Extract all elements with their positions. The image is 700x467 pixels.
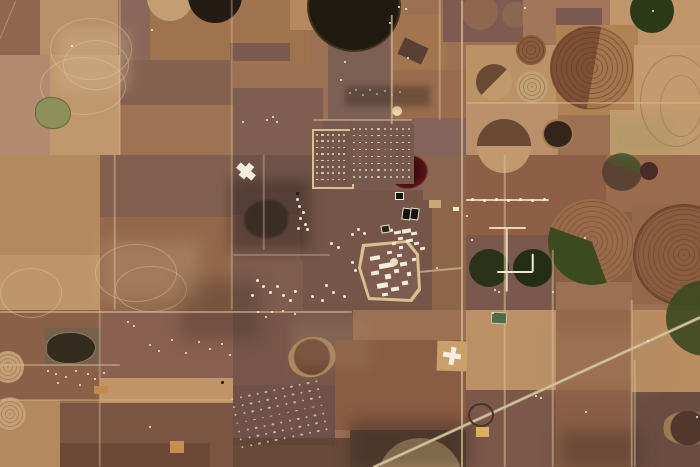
- grid-dot: [248, 394, 251, 396]
- grid-dot: [343, 147, 345, 149]
- terrain-mottle: [560, 430, 640, 467]
- section-road: [114, 155, 116, 310]
- grid-dot: [319, 396, 322, 398]
- plant-outbuildings: [269, 291, 272, 294]
- grid-dot: [371, 128, 373, 130]
- grid-dot: [322, 412, 325, 414]
- grid-dot: [390, 169, 392, 171]
- grid-dot: [307, 382, 310, 384]
- grid-dot: [396, 176, 398, 178]
- grid-dot: [300, 434, 303, 436]
- field-patch: [230, 43, 290, 61]
- grid-dot: [408, 163, 410, 165]
- section-road: [119, 0, 121, 155]
- grid-dot: [258, 443, 261, 445]
- grid-dot: [359, 163, 361, 165]
- grid-dot: [277, 405, 280, 407]
- grid-dot: [377, 176, 379, 178]
- pivot-wheel-dots: [531, 199, 534, 202]
- pivot-wheel-dots: [495, 198, 498, 201]
- grid-dot: [359, 149, 361, 151]
- grid-dot: [295, 410, 298, 412]
- plant-towers: [304, 223, 307, 226]
- grid-dot: [384, 176, 386, 178]
- grid-dot: [353, 169, 355, 171]
- scrub-speckles: [384, 90, 386, 92]
- pivot-wheel-dots: [519, 198, 522, 201]
- grid-dot: [321, 166, 323, 168]
- scrub-speckles: [355, 89, 357, 91]
- grid-dot: [251, 410, 254, 412]
- grid-dot: [267, 441, 270, 443]
- grid-dot: [316, 153, 318, 155]
- grid-dot: [298, 384, 301, 386]
- grid-dot: [260, 409, 263, 411]
- grid-dot: [343, 166, 345, 168]
- grid-dot: [307, 424, 310, 426]
- bunker-igloo-grid: [316, 134, 348, 185]
- terrain-mottle: [230, 180, 310, 250]
- grid-dot: [250, 402, 253, 404]
- grid-dot: [377, 169, 379, 171]
- field-patch: [120, 105, 233, 155]
- grid-dot: [327, 166, 329, 168]
- grid-dot: [377, 135, 379, 137]
- dark-ring-track: [468, 403, 494, 427]
- dark-dots: [296, 192, 299, 195]
- grid-dot: [305, 416, 308, 418]
- grid-dot: [302, 400, 305, 402]
- grid-dot: [384, 128, 386, 130]
- plant-outbuildings: [256, 279, 259, 282]
- grid-dot: [308, 390, 311, 392]
- grid-dot: [396, 156, 398, 158]
- grid-dot: [390, 176, 392, 178]
- pivot-arm-line: [506, 228, 508, 292]
- bunker-igloo-grid: [353, 128, 414, 183]
- grid-dot: [283, 395, 286, 397]
- satellite-image: [0, 0, 700, 467]
- grid-dot: [293, 401, 296, 403]
- grid-dot: [261, 417, 264, 419]
- grid-dot: [234, 414, 237, 416]
- grid-dot: [241, 404, 244, 406]
- grid-dot: [384, 149, 386, 151]
- grid-dot: [332, 153, 334, 155]
- grid-dot: [316, 147, 318, 149]
- grid-dot: [338, 179, 340, 181]
- grid-dot: [396, 128, 398, 130]
- field-patch: [423, 155, 466, 200]
- scrub-speckles: [362, 94, 364, 96]
- plant-outbuildings: [262, 285, 265, 288]
- grid-dot: [298, 426, 301, 428]
- grid-dot: [285, 403, 288, 405]
- grid-dot: [365, 169, 367, 171]
- grid-dot: [321, 153, 323, 155]
- grid-dot: [353, 156, 355, 158]
- grid-dot: [365, 142, 367, 144]
- grid-dot: [248, 436, 251, 438]
- grid-dot: [258, 401, 261, 403]
- grid-dot: [278, 413, 281, 415]
- grid-dot: [343, 140, 345, 142]
- plant-towers: [297, 227, 300, 230]
- grid-dot: [390, 163, 392, 165]
- grid-dot: [384, 156, 386, 158]
- plant-outbuildings: [251, 294, 254, 297]
- grid-dot: [327, 172, 329, 174]
- grid-dot: [280, 421, 283, 423]
- grid-dot: [338, 140, 340, 142]
- tan-pad: [429, 200, 441, 208]
- plant-building: [453, 207, 459, 211]
- grid-dot: [321, 140, 323, 142]
- grid-dot: [338, 134, 340, 136]
- grid-dot: [396, 135, 398, 137]
- grid-dot: [338, 160, 340, 162]
- section-road: [233, 254, 330, 256]
- green-sector-overlay: [548, 199, 636, 285]
- grid-dot: [327, 134, 329, 136]
- grid-dot: [290, 385, 293, 387]
- grid-dot: [390, 128, 392, 130]
- grid-dot: [402, 135, 404, 137]
- green-pivot-circle: [469, 249, 509, 287]
- grid-dot: [316, 134, 318, 136]
- grid-dot: [275, 439, 278, 441]
- grid-dot: [241, 446, 244, 448]
- grid-dot: [266, 399, 269, 401]
- grid-dot: [343, 160, 345, 162]
- grid-dot: [408, 156, 410, 158]
- orange-building: [170, 441, 184, 453]
- pivot-wheel-dots: [507, 199, 510, 202]
- grid-dot: [332, 166, 334, 168]
- grid-dot: [371, 163, 373, 165]
- plant-outbuildings: [282, 294, 285, 297]
- grid-dot: [353, 149, 355, 151]
- grid-dot: [371, 156, 373, 158]
- grid-dot: [282, 429, 285, 431]
- grid-dot: [315, 380, 318, 382]
- plant-outbuildings: [321, 299, 324, 302]
- grid-dot: [243, 412, 246, 414]
- grid-dot: [238, 430, 241, 432]
- grid-dot: [275, 397, 278, 399]
- grid-dot: [408, 135, 410, 137]
- section-road: [391, 15, 393, 125]
- grid-dot: [353, 142, 355, 144]
- dark-olive-circle: [602, 153, 642, 191]
- grid-dot: [402, 128, 404, 130]
- grid-dot: [396, 163, 398, 165]
- grid-dot: [384, 135, 386, 137]
- grid-dot: [377, 156, 379, 158]
- solar-panel: [409, 207, 420, 220]
- section-road: [0, 399, 233, 401]
- grid-dot: [321, 160, 323, 162]
- grid-dot: [325, 428, 328, 430]
- grid-dot: [332, 172, 334, 174]
- plant-outbuildings: [311, 295, 314, 298]
- grid-dot: [332, 140, 334, 142]
- ringed-pivot-circle: [516, 35, 546, 65]
- section-road: [313, 119, 412, 121]
- field-patch: [100, 155, 233, 217]
- grid-dot: [402, 169, 404, 171]
- tan-yellow-pad: [476, 427, 489, 437]
- grid-dot: [315, 422, 318, 424]
- grid-dot: [384, 169, 386, 171]
- grid-dot: [321, 179, 323, 181]
- scrub-speckles: [349, 92, 351, 94]
- grid-dot: [343, 179, 345, 181]
- grid-dot: [316, 179, 318, 181]
- plant-towers: [296, 198, 299, 201]
- section-road: [0, 311, 352, 313]
- grid-dot: [236, 422, 239, 424]
- terrain-mottle: [290, 318, 370, 368]
- grid-dot: [268, 407, 271, 409]
- section-road: [634, 360, 636, 467]
- grid-dot: [250, 444, 253, 446]
- grid-dot: [287, 411, 290, 413]
- grid-dot: [408, 128, 410, 130]
- grid-dot: [253, 418, 256, 420]
- scrub-speckles: [369, 89, 371, 91]
- grid-dot: [384, 163, 386, 165]
- grid-dot: [273, 431, 276, 433]
- plant-outbuildings: [294, 290, 297, 293]
- grid-dot: [377, 128, 379, 130]
- grid-dot: [297, 418, 300, 420]
- grid-dot: [371, 176, 373, 178]
- green-field-blob: [35, 97, 71, 129]
- grid-dot: [300, 392, 303, 394]
- section-road: [231, 0, 233, 310]
- dark-building: [380, 224, 390, 233]
- grid-dot: [320, 404, 323, 406]
- grid-dot: [317, 388, 320, 390]
- grid-dot: [292, 435, 295, 437]
- grid-dot: [377, 142, 379, 144]
- grid-dot: [359, 169, 361, 171]
- plant-outbuildings: [357, 228, 360, 231]
- section-road: [0, 364, 120, 366]
- plant-outbuildings: [354, 269, 357, 272]
- grid-dot: [332, 179, 334, 181]
- grid-dot: [408, 142, 410, 144]
- cream-tank: [392, 106, 402, 116]
- plant-building: [394, 269, 400, 274]
- grid-dot: [312, 406, 315, 408]
- grid-dot: [390, 135, 392, 137]
- grid-dot: [327, 160, 329, 162]
- grid-dot: [390, 142, 392, 144]
- grid-dot: [353, 128, 355, 130]
- plant-building: [407, 272, 412, 277]
- grid-dot: [303, 408, 306, 410]
- grid-dot: [233, 406, 236, 408]
- grid-dot: [240, 438, 243, 440]
- ringed-pivot-circle: [550, 26, 634, 110]
- grid-dot: [327, 179, 329, 181]
- grid-dot: [365, 176, 367, 178]
- grid-dot: [283, 437, 286, 439]
- grid-dot: [316, 160, 318, 162]
- grid-dot: [396, 142, 398, 144]
- grid-dot: [359, 142, 361, 144]
- field-patch: [120, 60, 233, 105]
- grid-dot: [270, 415, 273, 417]
- plant-outbuildings: [332, 291, 335, 294]
- plant-towers: [306, 228, 309, 231]
- grid-dot: [239, 396, 242, 398]
- small-maroon-circle: [640, 162, 658, 180]
- grid-dot: [272, 423, 275, 425]
- grid-dot: [332, 134, 334, 136]
- grid-dot: [282, 387, 285, 389]
- grid-dot: [365, 163, 367, 165]
- section-road: [466, 102, 700, 104]
- grid-dot: [310, 398, 313, 400]
- grid-dot: [332, 160, 334, 162]
- scrub-speckles: [376, 93, 378, 95]
- orange-building: [94, 386, 108, 394]
- plant-outbuildings: [289, 299, 292, 302]
- grid-dot: [321, 147, 323, 149]
- grid-dot: [338, 147, 340, 149]
- grid-dot: [338, 166, 340, 168]
- plant-outbuildings: [363, 232, 366, 235]
- grid-dot: [384, 142, 386, 144]
- plant-outbuildings: [343, 295, 346, 298]
- grid-dot: [365, 156, 367, 158]
- field-patch: [60, 443, 210, 467]
- ringed-pivot-circle: [516, 71, 548, 103]
- grid-dot: [288, 419, 291, 421]
- grid-dot: [343, 172, 345, 174]
- grid-dot: [359, 135, 361, 137]
- pivot-wheel-dots: [471, 198, 474, 201]
- grid-dot: [256, 434, 259, 436]
- grid-dot: [365, 149, 367, 151]
- plant-outbuildings: [325, 284, 328, 287]
- plant-outbuildings: [276, 285, 279, 288]
- cream-pond: [390, 258, 398, 266]
- grid-dot: [365, 128, 367, 130]
- grid-dot: [402, 163, 404, 165]
- farm-buildings: [405, 8, 408, 11]
- grid-dot: [321, 172, 323, 174]
- grid-dot: [353, 135, 355, 137]
- plant-outbuildings: [351, 261, 354, 264]
- grid-dot: [324, 420, 327, 422]
- dark-dots: [221, 381, 224, 384]
- grid-dot: [377, 163, 379, 165]
- scrub-speckles: [391, 94, 393, 96]
- terrain-mottle: [612, 120, 672, 155]
- grid-dot: [377, 149, 379, 151]
- grid-dot: [343, 153, 345, 155]
- grid-dot: [359, 128, 361, 130]
- grid-dot: [396, 169, 398, 171]
- grid-dot: [246, 428, 249, 430]
- grid-dot: [402, 176, 404, 178]
- grid-dot: [353, 176, 355, 178]
- plant-outbuildings: [351, 233, 354, 236]
- field-patch: [0, 155, 100, 255]
- grid-dot: [402, 149, 404, 151]
- grid-dot: [245, 420, 248, 422]
- grid-dot: [314, 414, 317, 416]
- grid-dot: [408, 176, 410, 178]
- grid-dot: [316, 166, 318, 168]
- terrain-mottle: [350, 420, 470, 467]
- grid-dot: [292, 393, 295, 395]
- plant-towers: [298, 205, 301, 208]
- grid-dot: [402, 142, 404, 144]
- section-road: [552, 250, 554, 467]
- grid-dot: [402, 156, 404, 158]
- section-road: [504, 155, 506, 467]
- grid-dot: [316, 140, 318, 142]
- grid-dot: [390, 149, 392, 151]
- grid-dot: [343, 134, 345, 136]
- grid-dot: [290, 427, 293, 429]
- grid-dot: [338, 172, 340, 174]
- grid-dot: [371, 135, 373, 137]
- grid-dot: [371, 149, 373, 151]
- grid-dot: [327, 140, 329, 142]
- plant-towers: [299, 217, 302, 220]
- grid-dot: [359, 156, 361, 158]
- pivot-wheel-dots: [483, 199, 486, 202]
- grid-dot: [332, 147, 334, 149]
- grid-dot: [396, 149, 398, 151]
- grid-dot: [255, 426, 258, 428]
- grid-dot: [317, 430, 320, 432]
- plant-outbuildings: [337, 246, 340, 249]
- grid-dot: [327, 147, 329, 149]
- half-dark-pivot-circle: [476, 64, 512, 100]
- scrub-speckles: [399, 91, 401, 93]
- terrain-mottle: [345, 86, 430, 106]
- grid-dot: [359, 176, 361, 178]
- pivot-arm-line: [497, 271, 533, 273]
- grid-dot: [263, 425, 266, 427]
- dark-pond: [542, 119, 574, 149]
- grid-dot: [338, 153, 340, 155]
- grid-dot: [371, 142, 373, 144]
- plant-towers: [302, 211, 305, 214]
- section-road: [461, 0, 463, 467]
- grid-dot: [353, 163, 355, 165]
- section-road: [439, 0, 441, 120]
- pivot-arm-line: [532, 254, 534, 272]
- section-road: [631, 300, 633, 467]
- solar-panel: [395, 192, 404, 200]
- grid-dot: [365, 135, 367, 137]
- grid-dot: [316, 172, 318, 174]
- grid-dot: [231, 398, 234, 400]
- pivot-wheel-dots: [543, 198, 546, 201]
- plant-outbuildings: [330, 242, 333, 245]
- grid-dot: [408, 149, 410, 151]
- grid-dot: [265, 391, 268, 393]
- grid-dot: [256, 393, 259, 395]
